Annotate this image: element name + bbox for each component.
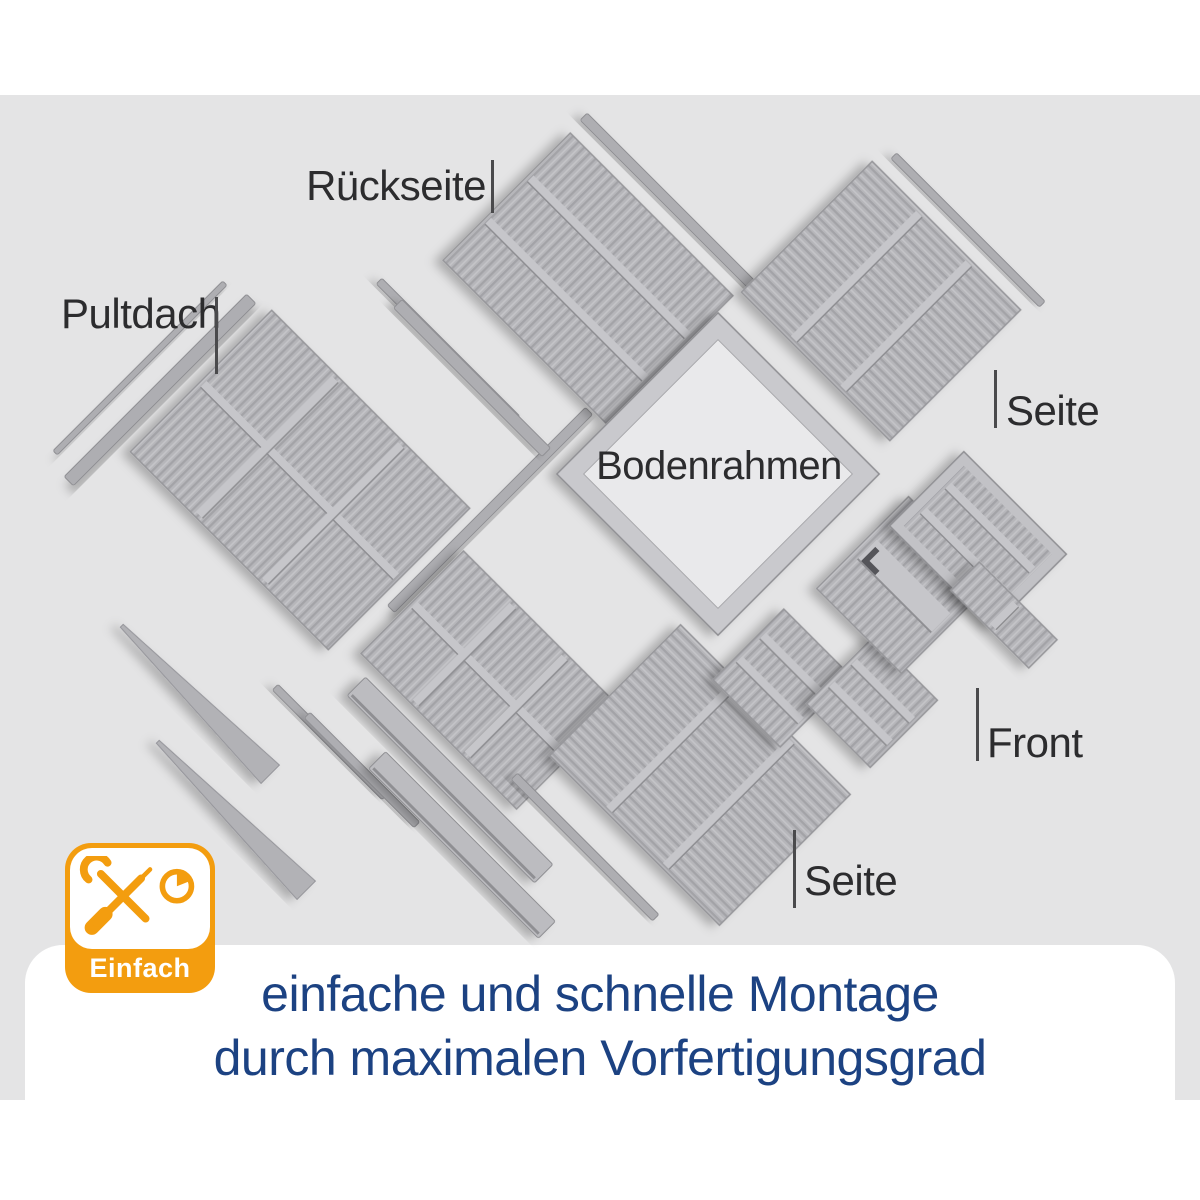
label-tick-rueckseite [491, 160, 494, 213]
label-pultdach: Pultdach [61, 290, 220, 338]
label-rueckseite: Rückseite [306, 162, 486, 210]
badge-icon-area [70, 848, 210, 949]
label-bodenrahmen: Bodenrahmen [569, 444, 869, 489]
label-front: Front [987, 719, 1083, 767]
label-seite-bottom: Seite [804, 857, 897, 905]
product-diagram-page: { "diagram": { "labels": { "rueckseite":… [0, 0, 1200, 1200]
timer-icon [162, 872, 191, 901]
caption-line-2: durch maximalen Vorfertigungsgrad [25, 1026, 1175, 1090]
easy-assembly-badge: Einfach [65, 843, 215, 993]
label-tick-seite-bottom [793, 830, 796, 908]
label-tick-front [976, 688, 979, 761]
label-seite-right: Seite [1006, 387, 1099, 435]
label-tick-seite-right [994, 370, 997, 428]
badge-label: Einfach [65, 953, 215, 984]
label-tick-pultdach [215, 297, 218, 374]
